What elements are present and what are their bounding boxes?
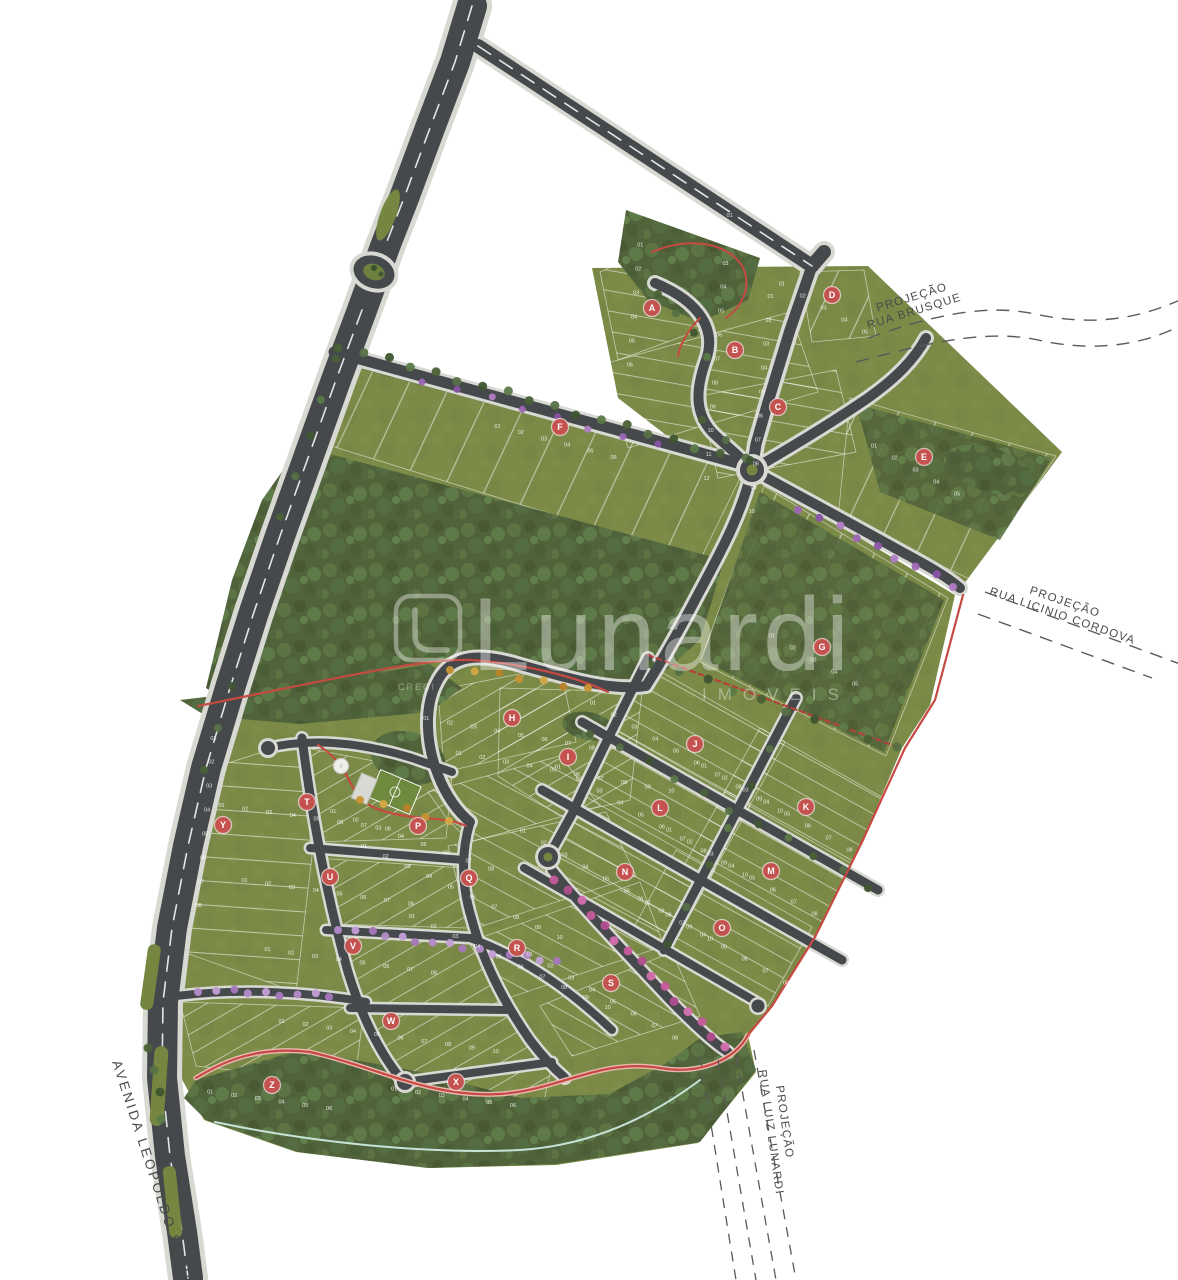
lot-number: 03 — [266, 810, 272, 816]
lot-number: 08 — [712, 380, 718, 386]
lot-number: 09 — [469, 1046, 475, 1052]
lot-number: 10 — [708, 428, 714, 434]
lot-number: 09 — [583, 995, 589, 1001]
lot-number: 01 — [241, 878, 247, 884]
lot-number: 06 — [337, 820, 343, 826]
lot-number: 04 — [631, 315, 637, 321]
lot-number: 03 — [820, 306, 826, 312]
block-badge-Y[interactable]: Y — [215, 817, 232, 834]
block-letter: V — [350, 941, 356, 951]
lot-number: 04 — [582, 865, 588, 871]
lot-number: 06 — [326, 1106, 332, 1112]
lot-number: 04 — [564, 443, 570, 449]
lot-number: 05 — [954, 492, 960, 498]
block-letter: A — [649, 303, 656, 313]
block-letter: C — [775, 402, 782, 412]
lot-number: 05 — [784, 812, 790, 818]
lot-number: 04 — [728, 864, 734, 870]
lot-number: 07 — [755, 437, 761, 443]
lot-number: 07 — [361, 823, 367, 829]
lot-number: 01 — [361, 844, 367, 850]
watermark-brand: Lunardi — [472, 577, 854, 693]
lot-number: 02 — [658, 909, 664, 915]
lot-number: 05 — [718, 309, 724, 315]
block-badge-A[interactable]: A — [644, 300, 661, 317]
lot-number: 01 — [555, 765, 561, 771]
block-badge-E[interactable]: E — [916, 449, 933, 466]
lot-number: 06 — [510, 1103, 516, 1109]
lot-number: 07 — [491, 905, 497, 911]
lot-number: 08 — [811, 912, 817, 918]
lot-number: 06 — [770, 888, 776, 894]
block-letter: U — [327, 872, 334, 882]
lot-number: 05 — [629, 338, 635, 344]
lot-number: 08 — [735, 785, 741, 791]
lot-number: 02 — [541, 841, 547, 847]
lot-number: 02 — [353, 818, 359, 824]
lot-number: 05 — [610, 1000, 616, 1006]
label-projecao-rua-luiz-lunardi: PROJEÇÃO RUA LUIZ LUNARDI — [756, 1067, 801, 1196]
lot-number: 02 — [722, 776, 728, 782]
block-letter: K — [803, 802, 810, 812]
lot-number: 02 — [302, 1022, 308, 1028]
block-badge-S[interactable]: S — [603, 975, 620, 992]
lot-number: 06 — [694, 761, 700, 767]
lot-number: 07 — [597, 776, 603, 782]
lot-number: 04 — [841, 318, 847, 324]
lot-number: 01 — [767, 294, 773, 300]
lot-number: 04 — [474, 944, 480, 950]
lot-number: 07 — [539, 975, 545, 981]
lot-number: 02 — [687, 840, 693, 846]
lot-number: 07 — [680, 837, 686, 843]
lot-number: 02 — [547, 964, 553, 970]
lot-number: 01 — [495, 424, 501, 430]
lot-number: 01 — [218, 803, 224, 809]
lot-number: 01 — [279, 1019, 285, 1025]
lot-number: 02 — [765, 318, 771, 324]
watermark-suffix: IMÓVEIS — [702, 685, 850, 704]
lot-number: 07 — [421, 1039, 427, 1045]
lot-number: 08 — [431, 971, 437, 977]
block-letter: Q — [465, 873, 472, 883]
block-letter: M — [767, 866, 775, 876]
lot-number: 01 — [871, 444, 877, 450]
block-badge-C[interactable]: C — [770, 399, 787, 416]
block-badge-U[interactable]: U — [322, 869, 339, 886]
lot-number: 10 — [888, 872, 894, 878]
lot-number: 05 — [518, 733, 524, 739]
lot-number: 03 — [707, 852, 713, 858]
block-badge-I[interactable]: I — [560, 749, 577, 766]
lot-number: 02 — [208, 760, 214, 766]
lot-number: 08 — [408, 902, 414, 908]
lot-number: 06 — [518, 965, 524, 971]
lot-number: 08 — [561, 985, 567, 991]
block-badge-Q[interactable]: Q — [461, 870, 478, 887]
block-letter: I — [567, 752, 570, 762]
lot-number: 08 — [621, 780, 627, 786]
lot-number: 01 — [409, 914, 415, 920]
lot-number: 06 — [200, 855, 206, 861]
lot-number: 09 — [721, 861, 727, 867]
lot-number: 03 — [404, 864, 410, 870]
lot-number: 09 — [535, 925, 541, 931]
lot-number: 07 — [407, 967, 413, 973]
lot-number: 06 — [397, 1036, 403, 1042]
lot-number: 03 — [375, 826, 381, 832]
block-letter: D — [829, 290, 836, 300]
masterplan-map[interactable]: 0102030405060102030405060708091011120102… — [0, 0, 1178, 1280]
block-badge-R[interactable]: R — [509, 940, 526, 957]
lot-number: 04 — [494, 729, 500, 735]
lot-number: 01 — [666, 828, 672, 834]
lot-number: 02 — [800, 294, 806, 300]
lot-number: 08 — [783, 981, 789, 987]
lot-number: 03 — [326, 1026, 332, 1032]
lot-number: 04 — [350, 1029, 356, 1035]
lot-number: 04 — [462, 1097, 468, 1103]
lot-number: 02 — [242, 807, 248, 813]
lot-number: 06 — [805, 824, 811, 830]
lot-number: 06 — [659, 825, 665, 831]
lot-number: 09 — [645, 784, 651, 790]
lot-number: 10 — [777, 809, 783, 815]
lot-number: 01 — [207, 1090, 213, 1096]
lot-number: 01 — [423, 716, 429, 722]
block-badge-K[interactable]: K — [798, 799, 815, 816]
lot-number: 10 — [707, 937, 713, 943]
block-badge-P[interactable]: P — [410, 818, 427, 835]
lot-number: 12 — [704, 476, 710, 482]
lot-number: 11 — [706, 452, 712, 458]
lot-number: 03 — [452, 934, 458, 940]
lot-number: 03 — [471, 725, 477, 731]
lot-number: 02 — [576, 777, 582, 783]
lot-number: 03 — [541, 436, 547, 442]
lot-number: 06 — [624, 889, 630, 895]
lot-number: 02 — [431, 924, 437, 930]
lot-number: 02 — [231, 1093, 237, 1099]
lot-number: 10 — [853, 936, 859, 942]
lot-number: 04 — [398, 834, 404, 840]
lot-number: 06 — [383, 964, 389, 970]
lot-number: 04 — [204, 808, 210, 814]
lot-number: 09 — [751, 485, 757, 491]
lot-number: 05 — [374, 1032, 380, 1038]
lot-number: 07 — [565, 741, 571, 747]
lot-number: 03 — [206, 784, 212, 790]
lot-number: 03 — [289, 885, 295, 891]
lot-number: 08 — [700, 849, 706, 855]
lot-number: 06 — [443, 850, 449, 856]
lot-number: 01 — [391, 1087, 397, 1093]
lot-number: 05 — [673, 749, 679, 755]
block-badge-X[interactable]: X — [448, 1074, 465, 1091]
lot-number: 07 — [791, 900, 797, 906]
lot-number: 01 — [701, 764, 707, 770]
lot-number: 08 — [513, 915, 519, 921]
lot-number: 01 — [456, 751, 462, 757]
watermark-creci: CRECI — [398, 682, 436, 692]
block-badge-T[interactable]: T — [299, 794, 316, 811]
lot-number: 04 — [763, 800, 769, 806]
lot-number: 05 — [313, 817, 319, 823]
lot-number: 08 — [672, 1036, 678, 1042]
lot-number: 04 — [290, 813, 296, 819]
lot-number: 05 — [749, 876, 755, 882]
lot-number: 06 — [742, 957, 748, 963]
lot-number: 04 — [278, 1100, 284, 1106]
block-letter: F — [557, 422, 563, 432]
lot-number: 01 — [264, 947, 270, 953]
lot-number: 02 — [611, 713, 617, 719]
lot-number: 05 — [496, 954, 502, 960]
lot-number: 03 — [596, 789, 602, 795]
lot-number: 05 — [638, 813, 644, 819]
lot-number: 03 — [679, 921, 685, 927]
lot-number: 06 — [360, 895, 366, 901]
block-letter: X — [453, 1077, 459, 1087]
lot-number: 06 — [631, 1012, 637, 1018]
lot-number: 09 — [867, 860, 873, 866]
lot-number: 01 — [637, 243, 643, 249]
block-badge-L[interactable]: L — [652, 800, 669, 817]
block-badge-D[interactable]: D — [824, 287, 841, 304]
block-badge-N[interactable]: N — [617, 864, 634, 881]
lot-number: 06 — [470, 895, 476, 901]
block-badge-J[interactable]: J — [687, 736, 704, 753]
lot-number: 06 — [541, 737, 547, 743]
lot-number: 02 — [479, 755, 485, 761]
block-letter: S — [608, 978, 614, 988]
lot-number: 07 — [826, 836, 832, 842]
lot-number: 01 — [638, 897, 644, 903]
lot-number: 04 — [933, 480, 939, 486]
lot-number: 01 — [779, 282, 785, 288]
block-badge-F[interactable]: F — [552, 419, 569, 436]
lot-number: 04 — [313, 888, 319, 894]
lot-number: 10 — [557, 935, 563, 941]
lot-number: 07 — [384, 898, 390, 904]
lot-number: 05 — [721, 945, 727, 951]
lot-number: 06 — [716, 333, 722, 339]
lot-number: 07 — [651, 1024, 657, 1030]
lot-number: 02 — [383, 854, 389, 860]
lot-number: 06 — [611, 455, 617, 461]
lot-number: 09 — [710, 404, 716, 410]
lot-number: 05 — [862, 330, 868, 336]
lot-number: 03 — [742, 788, 748, 794]
lot-number: 09 — [686, 925, 692, 931]
block-letter: O — [718, 923, 725, 933]
lot-number: 08 — [488, 867, 494, 873]
lot-number: 01 — [590, 701, 596, 707]
block-badge-O[interactable]: O — [714, 920, 731, 937]
block-badge-H[interactable]: H — [504, 710, 521, 727]
block-badge-W[interactable]: W — [383, 1013, 400, 1030]
lot-number: 08 — [445, 1042, 451, 1048]
lot-number: 08 — [846, 848, 852, 854]
lot-number: 01 — [330, 809, 336, 815]
lot-number: 03 — [312, 954, 318, 960]
block-letter: Y — [220, 820, 226, 830]
lot-number: 07 — [715, 773, 721, 779]
lot-number: 05 — [587, 449, 593, 455]
lot-number: 05 — [302, 1103, 308, 1109]
lot-number: 07 — [645, 901, 651, 907]
lot-number: 02 — [288, 951, 294, 957]
lot-number: 03 — [439, 1093, 445, 1099]
lot-number: 04 — [426, 874, 432, 880]
lot-number: 02 — [724, 237, 730, 243]
block-badge-V[interactable]: V — [345, 938, 362, 955]
lot-number: 01 — [210, 736, 216, 742]
block-letter: N — [622, 867, 629, 877]
lot-number: 07 — [466, 859, 472, 865]
lot-number: 06 — [627, 362, 633, 368]
lot-number: 07 — [714, 357, 720, 363]
block-letter: T — [304, 797, 310, 807]
lot-number: 04 — [700, 933, 706, 939]
masterplan-svg: 0102030405060102030405060708091011120102… — [0, 0, 1178, 1280]
lot-number: 07 — [762, 969, 768, 975]
lot-number: 02 — [635, 267, 641, 273]
lot-number: 06 — [757, 414, 763, 420]
lot-number: 02 — [447, 720, 453, 726]
lot-number: 09 — [832, 924, 838, 930]
lot-number: 02 — [265, 882, 271, 888]
lot-number: 10 — [749, 509, 755, 515]
block-letter: R — [514, 943, 521, 953]
block-letter: P — [415, 821, 421, 831]
lot-number: 03 — [561, 853, 567, 859]
lot-number: 02 — [892, 456, 898, 462]
lot-number: 02 — [415, 1090, 421, 1096]
block-letter: E — [921, 452, 927, 462]
block-letter: H — [509, 713, 516, 723]
lot-number: 04 — [720, 285, 726, 291]
lot-number: 04 — [617, 801, 623, 807]
lot-number: 04 — [527, 764, 533, 770]
block-letter: W — [387, 1016, 396, 1026]
block-badge-B[interactable]: B — [727, 342, 744, 359]
lot-number: 10 — [668, 789, 674, 795]
lot-number: 10 — [742, 873, 748, 879]
lot-number: 03 — [255, 1096, 261, 1102]
block-badge-M[interactable]: M — [763, 863, 780, 880]
lot-number: 03 — [722, 261, 728, 267]
lot-number: 08 — [753, 461, 759, 467]
block-letter: B — [732, 345, 739, 355]
block-letter: J — [692, 739, 697, 749]
lot-number: 10 — [605, 1005, 611, 1011]
lot-number: 04 — [336, 957, 342, 963]
lot-number: 05 — [359, 961, 365, 967]
block-letter: Z — [269, 1080, 275, 1090]
lot-number: 04 — [761, 366, 767, 372]
lot-number: 03 — [912, 468, 918, 474]
lot-number: 04 — [652, 737, 658, 743]
lot-number: 01 — [527, 952, 533, 958]
lot-number: 03 — [568, 976, 574, 982]
lot-number: 08 — [665, 913, 671, 919]
block-letter: L — [657, 803, 663, 813]
lot-number: 03 — [763, 342, 769, 348]
lot-number: 05 — [336, 892, 342, 898]
label-projecao-rua-licinio-cordova: PROJEÇÃO RUA LICINIO CORDOVA — [988, 572, 1142, 648]
lot-number: 09 — [756, 797, 762, 803]
block-badge-Z[interactable]: Z — [264, 1077, 281, 1094]
lot-number: 05 — [448, 884, 454, 890]
lot-number: 05 — [202, 832, 208, 838]
lot-number: 03 — [631, 725, 637, 731]
lot-number: 08 — [196, 903, 202, 909]
lot-number: 05 — [603, 877, 609, 883]
lot-number: 04 — [589, 988, 595, 994]
lot-number: 01 — [727, 213, 733, 219]
lot-number: 08 — [385, 827, 391, 833]
lot-number: 05 — [759, 390, 765, 396]
lot-number: 01 — [520, 829, 526, 835]
lot-number: 10 — [493, 1049, 499, 1055]
lot-number: 03 — [503, 759, 509, 765]
lot-number: 05 — [420, 842, 426, 848]
lot-number: 05 — [486, 1100, 492, 1106]
lot-number: 03 — [633, 291, 639, 297]
lot-number: 08 — [589, 745, 595, 751]
lot-number: 02 — [518, 430, 524, 436]
lot-number: 07 — [198, 879, 204, 885]
